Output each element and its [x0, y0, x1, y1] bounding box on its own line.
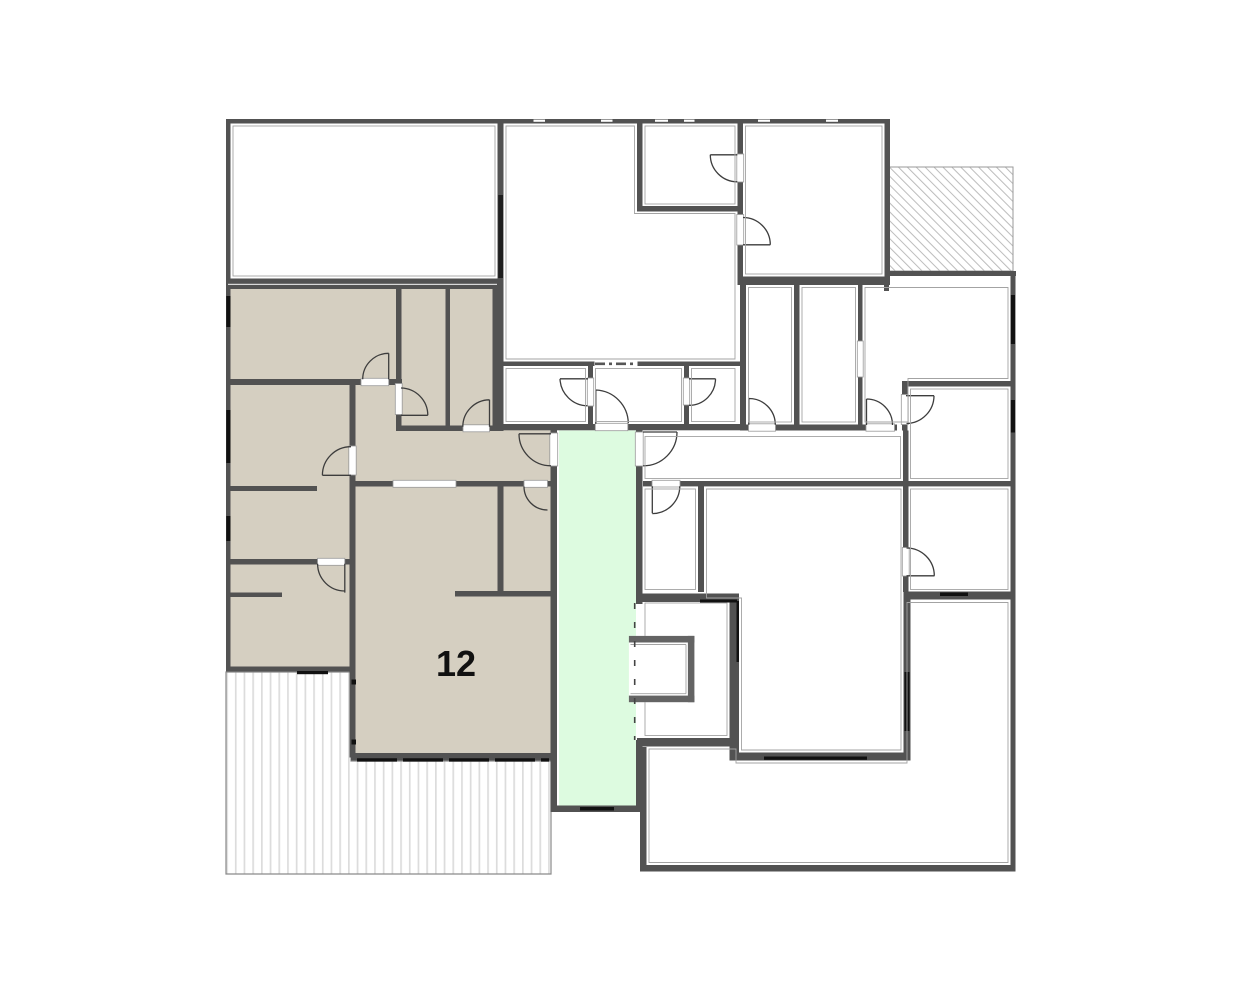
svg-text:12: 12 [436, 643, 476, 684]
